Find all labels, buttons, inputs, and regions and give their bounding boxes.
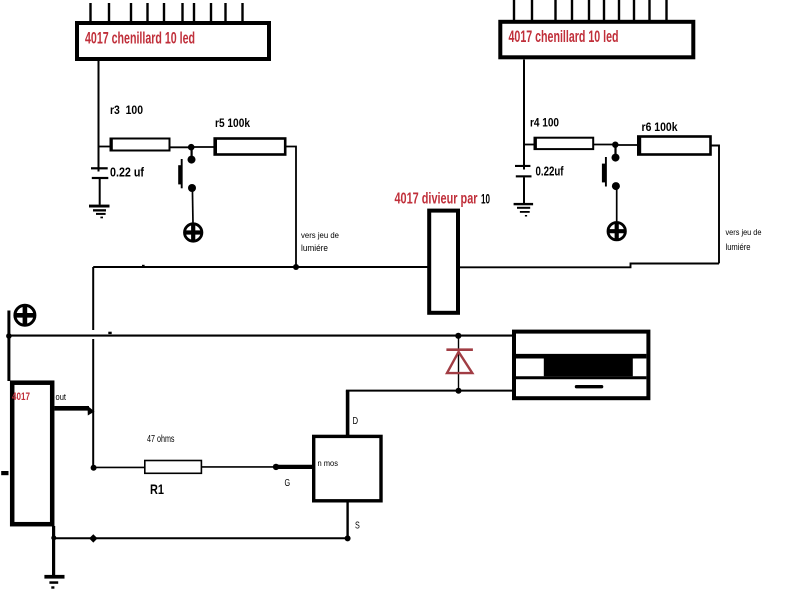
svg-text:out: out [56, 392, 67, 403]
svg-text:0.22uf: 0.22uf [536, 164, 564, 179]
svg-text:47 ohms: 47 ohms [147, 434, 175, 445]
svg-text:vers jeu de: vers jeu de [726, 227, 762, 237]
svg-text:vers jeu de: vers jeu de [301, 230, 339, 240]
svg-text:r3 100: r3 100 [110, 103, 143, 117]
svg-text:n mos: n mos [318, 458, 339, 468]
svg-text:lumiére: lumiére [726, 242, 751, 252]
svg-text:lumiére: lumiére [301, 243, 328, 253]
svg-text:4017 chenillard 10 led: 4017 chenillard 10 led [85, 29, 195, 48]
svg-text:S: S [355, 521, 360, 532]
svg-text:10: 10 [481, 191, 490, 207]
svg-text:4017: 4017 [12, 391, 30, 403]
svg-text:0.22 uf: 0.22 uf [110, 165, 145, 180]
svg-text:G: G [285, 478, 291, 489]
svg-text:D: D [353, 416, 359, 427]
svg-text:r4 100: r4 100 [530, 116, 559, 130]
svg-text:r5 100k: r5 100k [215, 116, 250, 130]
svg-text:r6 100k: r6 100k [642, 120, 678, 134]
svg-text:R1: R1 [150, 481, 164, 497]
svg-text:4017 divieur par: 4017 divieur par [395, 191, 478, 208]
svg-text:4017 chenillard 10 led: 4017 chenillard 10 led [509, 27, 619, 46]
